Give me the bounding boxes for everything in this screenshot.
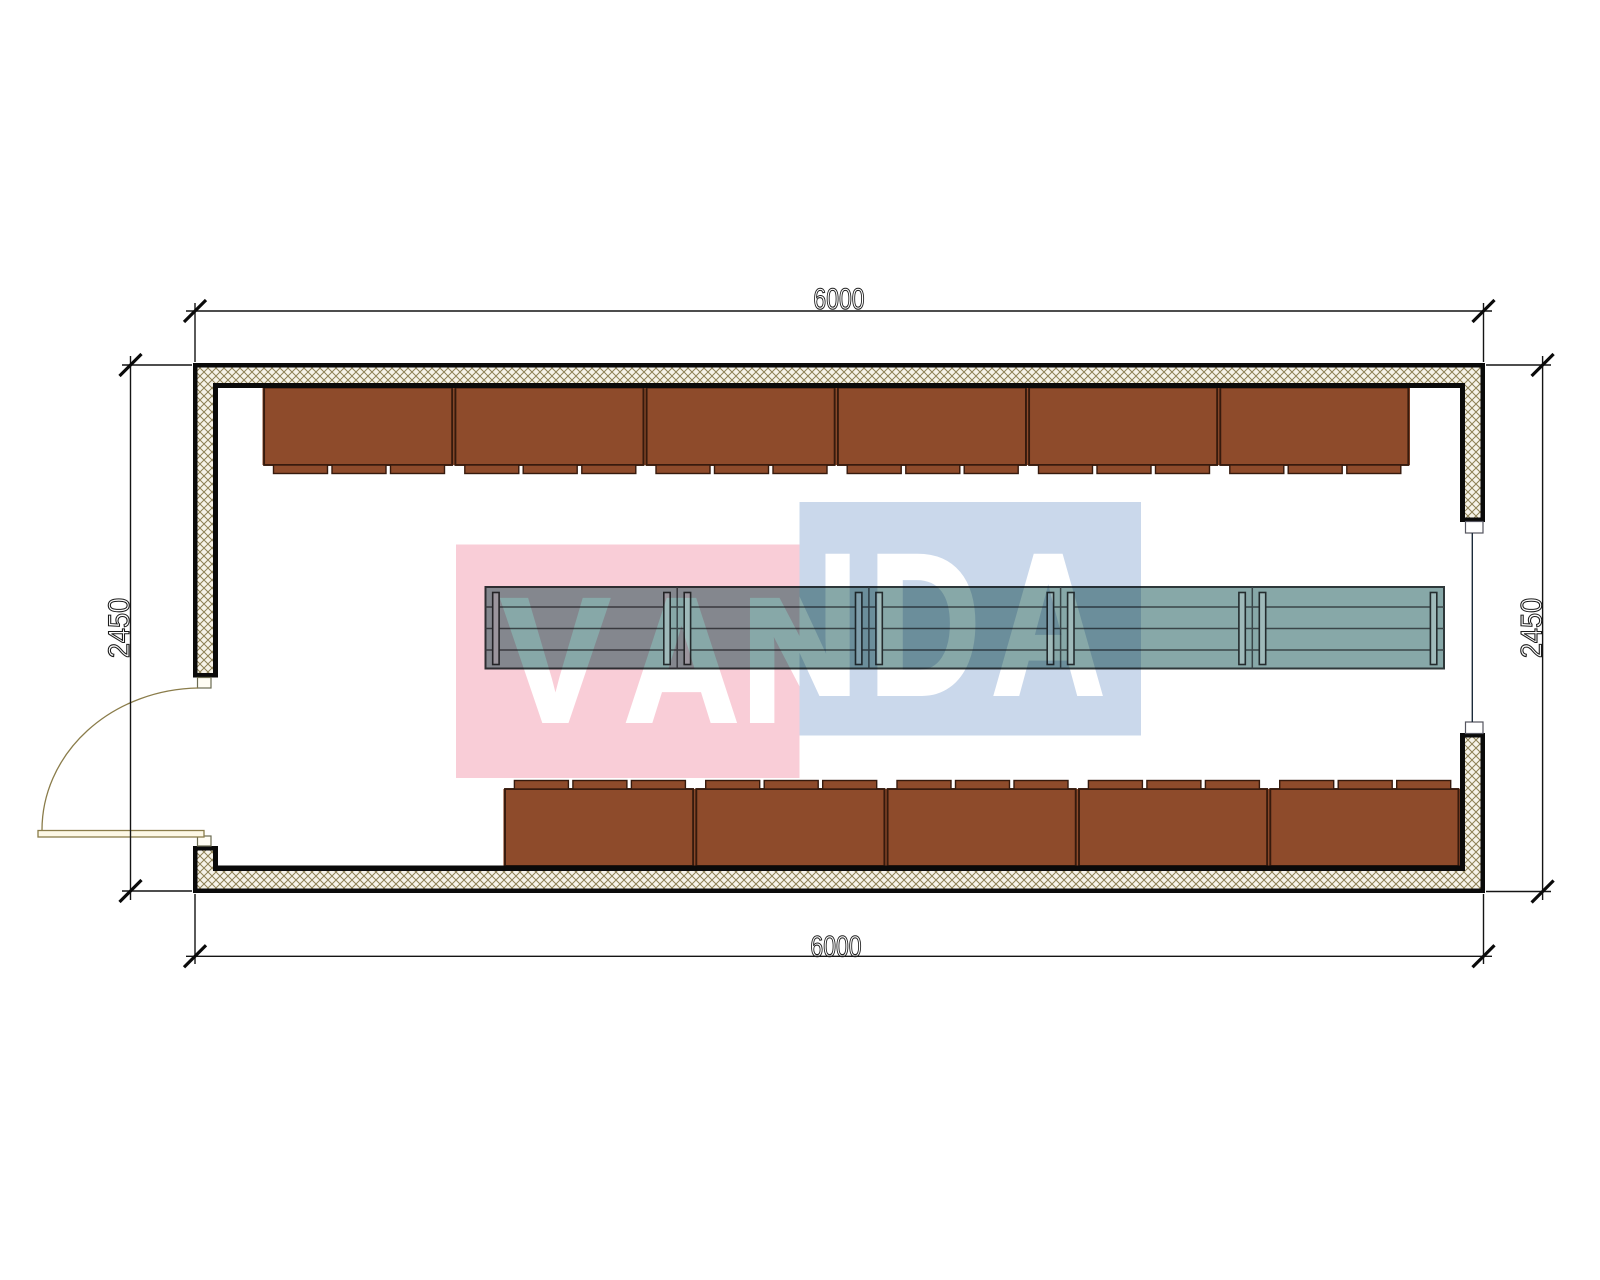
svg-text:6000: 6000 xyxy=(813,282,864,315)
svg-text:2450: 2450 xyxy=(103,598,136,658)
svg-text:6000: 6000 xyxy=(810,930,861,963)
svg-text:2450: 2450 xyxy=(1515,598,1548,658)
